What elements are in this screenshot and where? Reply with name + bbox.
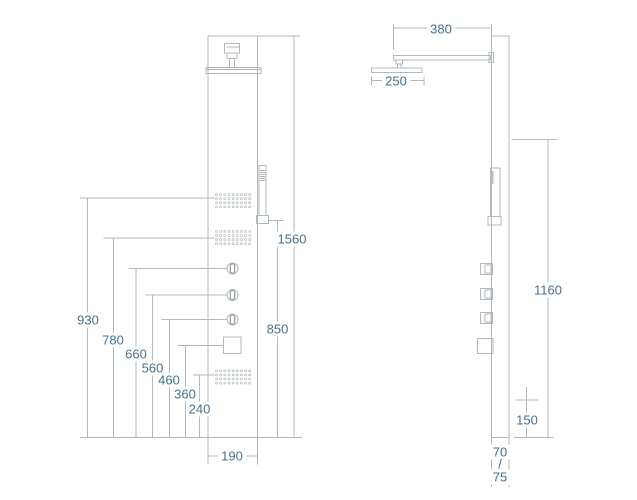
- dim-label-mid-jets: 780: [99, 332, 127, 347]
- dim-label-bottom-offset: 150: [513, 412, 541, 427]
- dim-label-lower-jets: 240: [186, 401, 214, 416]
- front-mid-jets-grid: [215, 229, 252, 245]
- front-knob-middle-icon: [227, 290, 238, 301]
- technical-drawing-canvas: 930 780 660 560 460 360 240 190 1560 850…: [0, 0, 637, 500]
- side-knob-middle-icon: [481, 289, 493, 300]
- side-knob-bottom-icon: [481, 313, 493, 324]
- shower-panel-drawing: [0, 0, 637, 500]
- front-knob-top-icon: [227, 263, 238, 274]
- side-knob-top-icon: [481, 264, 493, 275]
- side-hand-shower-icon: [488, 168, 501, 225]
- front-diverter-icon: [224, 337, 242, 354]
- front-knob-bottom-icon: [227, 314, 238, 325]
- side-shower-arm-icon: [394, 53, 494, 69]
- side-diverter-icon: [478, 339, 494, 354]
- dim-label-arm-projection: 380: [427, 21, 455, 36]
- dim-label-hand-shower: 850: [264, 321, 292, 336]
- dim-label-knob-top: 660: [122, 347, 150, 362]
- dim-label-diverter: 360: [171, 386, 199, 401]
- front-upper-jets-grid: [215, 193, 252, 209]
- side-shower-head-icon: [372, 68, 423, 73]
- dim-label-upper-jets: 930: [74, 312, 102, 327]
- front-hand-shower-icon: [257, 166, 269, 224]
- side-panel-outline: [492, 36, 510, 438]
- front-shower-arm-bracket-icon: [206, 44, 261, 74]
- dim-label-head-width: 250: [382, 73, 410, 88]
- front-lower-jets-grid: [215, 369, 252, 385]
- dim-label-outlet-height: 1160: [531, 283, 565, 298]
- dim-label-knob-bottom: 460: [155, 372, 183, 387]
- dim-label-depth-bottom: 75: [490, 470, 510, 485]
- dim-label-total-height: 1560: [275, 231, 310, 246]
- dim-label-panel-width: 190: [218, 449, 246, 464]
